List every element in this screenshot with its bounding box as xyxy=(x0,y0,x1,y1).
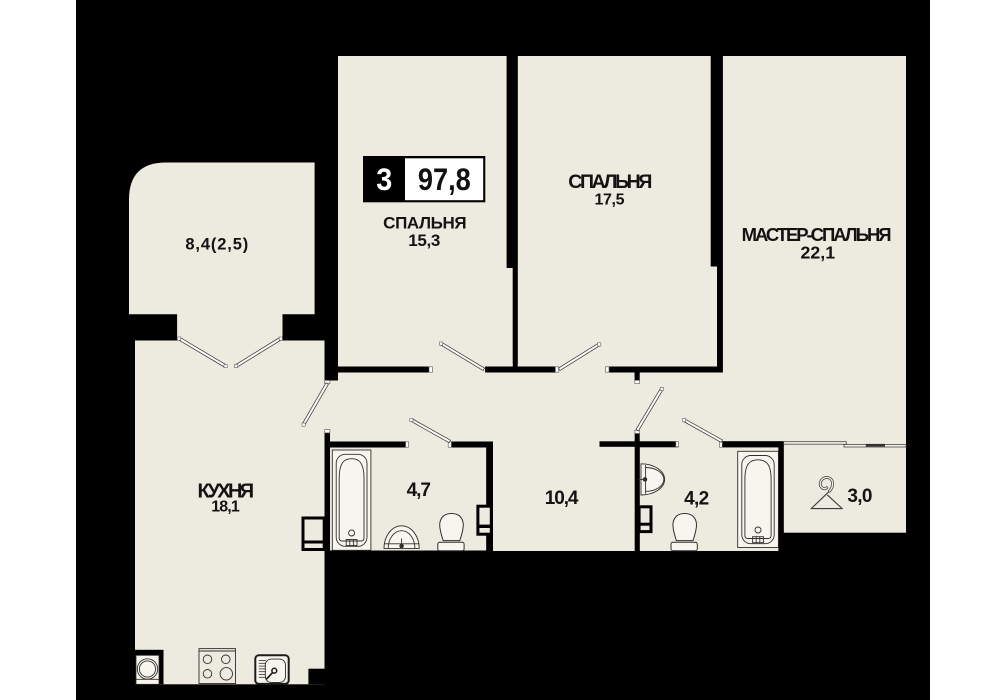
svg-text:СПАЛЬНЯ: СПАЛЬНЯ xyxy=(568,171,652,193)
svg-text:17,5: 17,5 xyxy=(594,192,624,209)
svg-text:22,1: 22,1 xyxy=(801,243,836,263)
svg-text:3: 3 xyxy=(376,161,392,197)
svg-text:18,1: 18,1 xyxy=(211,499,240,516)
svg-text:8,4(2,5): 8,4(2,5) xyxy=(185,236,248,254)
svg-text:СПАЛЬНЯ: СПАЛЬНЯ xyxy=(383,213,467,232)
svg-text:10,4: 10,4 xyxy=(545,488,579,509)
svg-text:15,3: 15,3 xyxy=(408,231,440,250)
svg-text:4,2: 4,2 xyxy=(684,489,709,510)
svg-text:3,0: 3,0 xyxy=(847,486,872,507)
svg-text:97,8: 97,8 xyxy=(418,161,471,197)
svg-text:4,7: 4,7 xyxy=(407,480,431,501)
